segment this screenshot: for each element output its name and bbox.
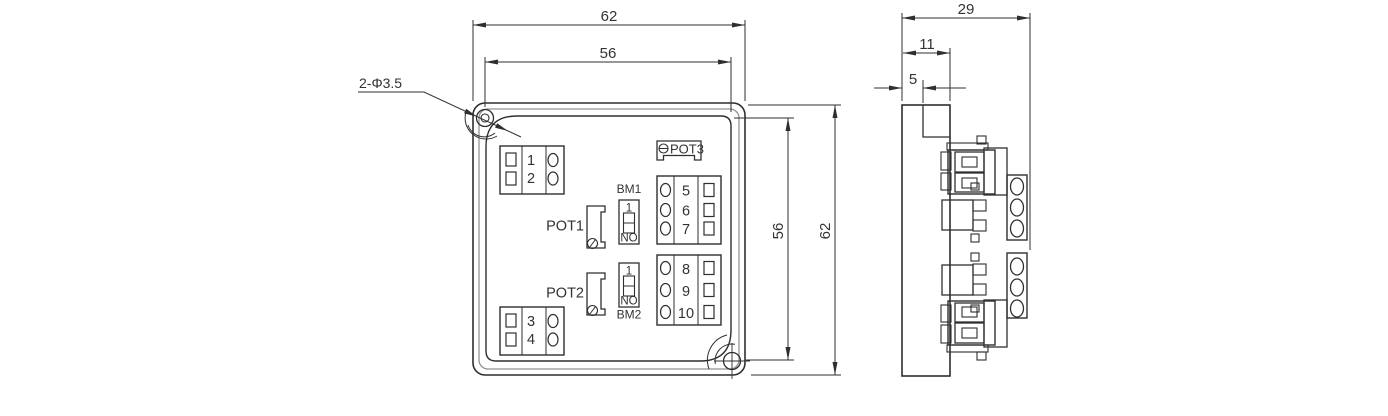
pot2-body (587, 273, 605, 315)
terminal-number: 4 (527, 332, 535, 348)
dim-depth-flange: 5 (874, 71, 966, 91)
dimension-drawing: 2-Φ3.5 1 2 3 4 (0, 0, 1388, 416)
pot3: POT3 (657, 141, 704, 160)
terminal-number: 10 (678, 306, 694, 322)
terminal-block-3-4: 3 4 (500, 307, 564, 355)
bm2-position-bottom: NO (620, 296, 637, 308)
dim-depth-total: 29 (902, 1, 1030, 21)
terminal-number: 9 (682, 284, 690, 300)
drawing-svg: 2-Φ3.5 1 2 3 4 (0, 0, 1388, 416)
dim-label: 62 (601, 8, 618, 25)
pot1: POT1 (546, 206, 605, 249)
side-body-outline (902, 105, 950, 376)
terminal-block-5-6-7: 5 6 7 (657, 176, 721, 244)
switch-bm1: BM1 1 NO (617, 182, 642, 245)
dim-depth-body: 11 (903, 36, 950, 56)
terminal-number: 6 (682, 204, 690, 220)
terminal-block-1-2: 1 2 (500, 146, 564, 194)
terminal-block-8-9-10: 8 9 10 (657, 255, 721, 325)
dim-label: 5 (909, 71, 917, 88)
terminal-number: 3 (527, 314, 535, 330)
dim-label: 62 (817, 223, 834, 240)
side-connector-top (941, 136, 1027, 242)
switch-bm2: 1 NO BM2 (617, 263, 642, 322)
terminal-number: 7 (682, 222, 690, 238)
pot1-label: POT1 (546, 219, 584, 235)
hole-callout: 2-Φ3.5 (358, 75, 521, 137)
pot1-body (587, 206, 605, 248)
dim-label: 56 (770, 223, 787, 240)
terminal-number: 8 (682, 262, 690, 278)
leader-arrow-icon (495, 123, 508, 131)
side-body-step (923, 105, 950, 137)
dim-label: 29 (958, 1, 975, 18)
dim-label: 11 (919, 36, 935, 53)
front-view: 2-Φ3.5 1 2 3 4 (358, 75, 750, 379)
terminal-number: 2 (527, 171, 535, 187)
screw-slot-icon (962, 157, 977, 167)
dim-width-inner: 56 (485, 45, 731, 65)
mounting-hole-bottom-right (707, 335, 750, 379)
dim-height-outer: 62 (817, 105, 838, 375)
pot3-label: POT3 (670, 142, 704, 157)
dim-height-inner: 56 (770, 118, 791, 360)
terminal-number: 5 (682, 184, 690, 200)
dim-width-outer: 62 (473, 8, 745, 28)
dim-label: 56 (600, 45, 617, 62)
bm2-label: BM2 (617, 308, 642, 322)
terminal-number: 1 (527, 153, 535, 169)
bm1-position-bottom: NO (620, 233, 637, 245)
front-outer-outline (473, 103, 745, 375)
pot2-label: POT2 (546, 286, 584, 302)
screw-slot-icon (962, 328, 977, 338)
leader-arrow-icon (464, 109, 477, 117)
pot2: POT2 (546, 273, 605, 316)
bm1-label: BM1 (617, 182, 642, 196)
side-view (902, 105, 1027, 376)
hole-callout-label: 2-Φ3.5 (359, 75, 402, 91)
side-connector-bottom (941, 253, 1027, 360)
